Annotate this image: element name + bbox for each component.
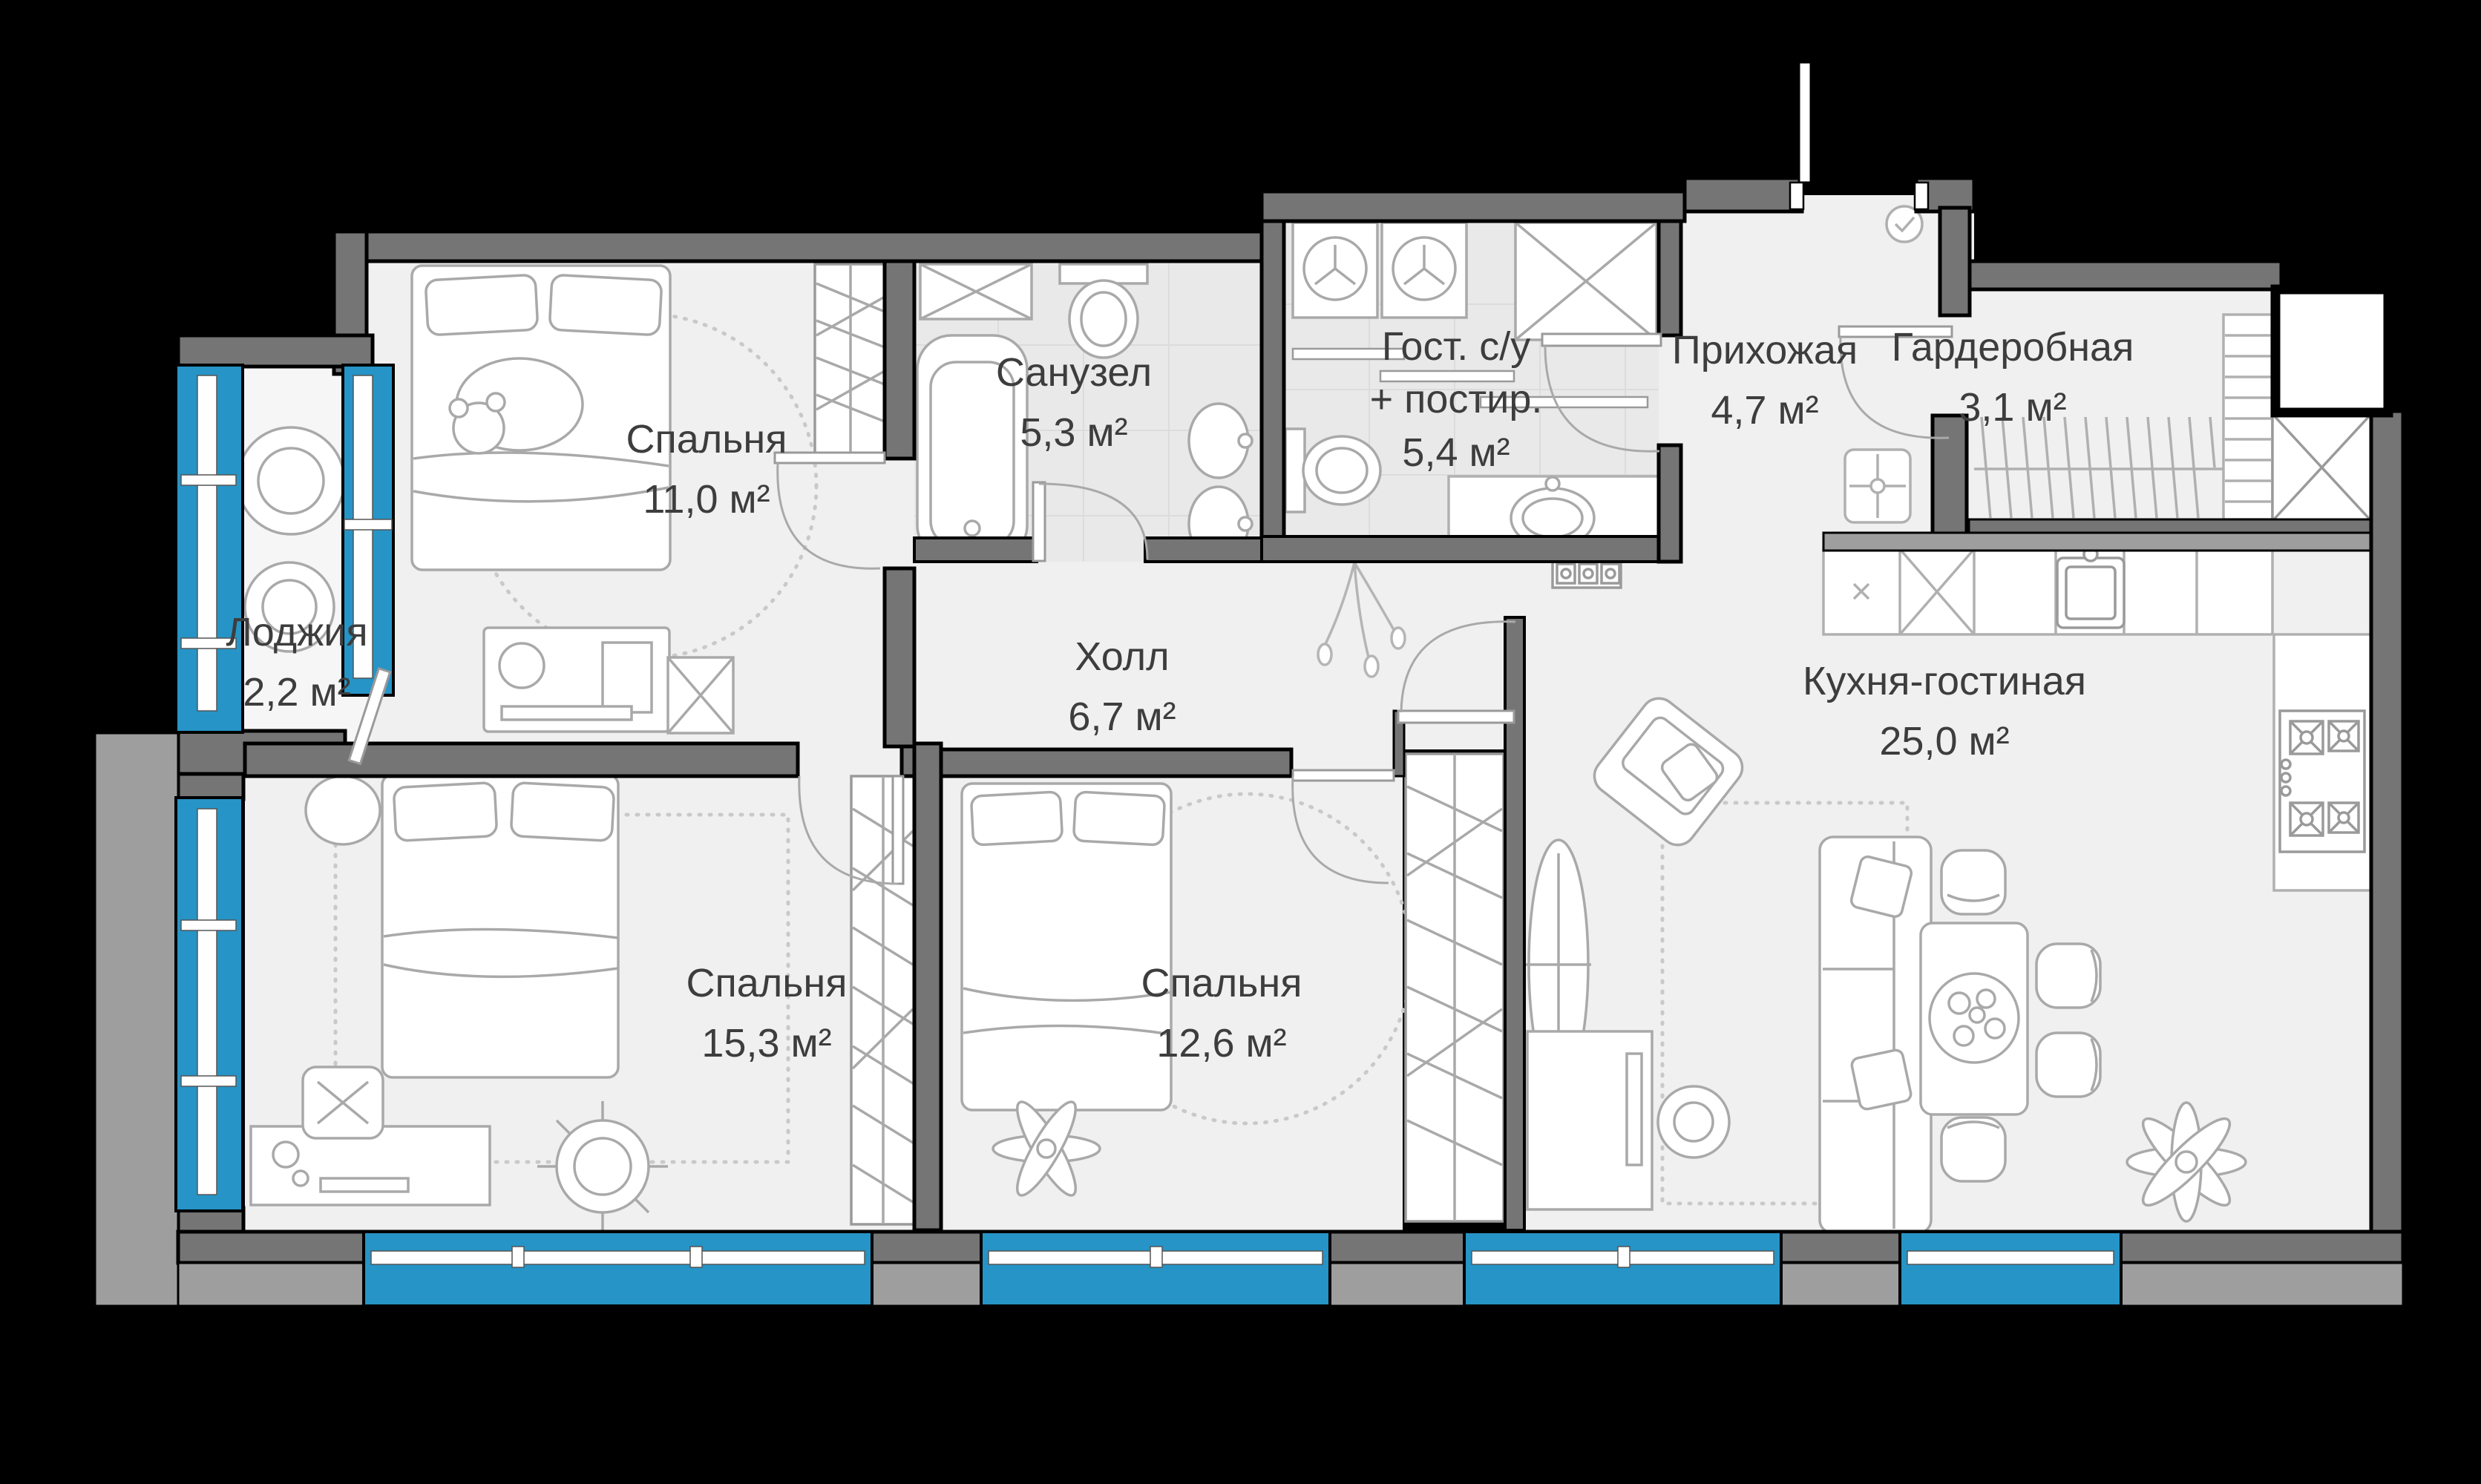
ceiling-light-icon bbox=[1845, 450, 1910, 522]
desk-icon bbox=[1527, 1031, 1652, 1209]
closet-icon bbox=[1406, 754, 1504, 1221]
wall bbox=[1262, 191, 1685, 221]
door-leaf bbox=[1293, 770, 1394, 781]
wall bbox=[941, 749, 1291, 776]
shower-cabinet-icon bbox=[920, 264, 1032, 319]
wall bbox=[885, 568, 914, 746]
stove-icon bbox=[2280, 711, 2364, 852]
wall bbox=[1685, 178, 1802, 211]
window bbox=[364, 1232, 872, 1306]
wall bbox=[245, 743, 798, 776]
wall bbox=[1262, 221, 1284, 560]
floor-plan: Лоджия 2,2 м² Спальня 11,0 м² Санузел 5,… bbox=[0, 0, 2481, 1484]
wall bbox=[1940, 208, 1970, 315]
window bbox=[1464, 1232, 1781, 1306]
window bbox=[981, 1232, 1330, 1306]
loggia-wall bbox=[178, 335, 373, 367]
door-leaf bbox=[1398, 711, 1514, 723]
bed-icon bbox=[382, 775, 618, 1077]
chair-icon bbox=[303, 1067, 383, 1138]
wall bbox=[1659, 221, 1681, 335]
door-leaf bbox=[1542, 334, 1661, 346]
wall bbox=[1659, 445, 1681, 562]
cabinet-icon bbox=[2272, 414, 2371, 521]
stool-icon bbox=[668, 657, 733, 733]
bed-icon bbox=[962, 784, 1171, 1110]
wall bbox=[1505, 617, 1524, 1230]
wall bbox=[1145, 538, 1262, 562]
kitchen-counter bbox=[1823, 549, 2272, 634]
door-jamb bbox=[1790, 183, 1803, 209]
wardrobe-icon bbox=[851, 776, 914, 1224]
wall bbox=[1970, 261, 2281, 289]
office-chair-icon bbox=[1658, 1086, 1729, 1158]
room-label-loggia: Лоджия 2,2 м² bbox=[226, 603, 367, 723]
door-leaf bbox=[893, 776, 903, 884]
wall bbox=[2371, 411, 2403, 1264]
desk-icon bbox=[484, 628, 669, 732]
pouf-icon bbox=[306, 776, 380, 844]
room-label-bedroom-1: Спальня 11,0 м² bbox=[626, 410, 787, 530]
wall bbox=[914, 743, 941, 1230]
dining-table-icon bbox=[1921, 923, 2028, 1114]
entry-door-leaf bbox=[1799, 62, 1811, 183]
room-label-bedroom-2: Спальня 15,3 м² bbox=[686, 953, 848, 1074]
plant-icon bbox=[2127, 1103, 2246, 1221]
wall bbox=[334, 232, 1284, 261]
washing-machine-icon bbox=[1382, 223, 1466, 318]
room-label-bathroom: Санузел 5,3 м² bbox=[996, 343, 1152, 463]
wall bbox=[178, 774, 243, 799]
room-label-entry-hall: Прихожая 4,7 м² bbox=[1672, 321, 1858, 441]
door-leaf bbox=[1033, 482, 1045, 561]
room-label-wardrobe-room: Гардеробная 3,1 м² bbox=[1892, 318, 2134, 438]
room-label-bedroom-3: Спальня 12,6 м² bbox=[1141, 953, 1302, 1074]
door-jamb bbox=[1915, 183, 1928, 209]
floor-plan-drawing bbox=[0, 0, 2481, 1484]
wall bbox=[914, 538, 1037, 562]
door-leaf bbox=[775, 453, 885, 463]
wardrobe-icon bbox=[815, 264, 886, 454]
room-label-hall: Холл 6,7 м² bbox=[1068, 627, 1176, 747]
wall bbox=[885, 261, 914, 459]
shelf-unit-icon bbox=[2223, 315, 2272, 519]
wall bbox=[1262, 536, 1659, 562]
loggia-chair-icon bbox=[237, 427, 344, 534]
room-label-guest-bathroom: Гост. с/у + постир. 5,4 м² bbox=[1370, 321, 1543, 479]
sofa-icon bbox=[1820, 837, 1931, 1233]
half-wall bbox=[1823, 533, 2371, 551]
outer-wall-band bbox=[95, 733, 178, 1306]
window bbox=[1900, 1232, 2121, 1306]
washing-machine-icon bbox=[1293, 223, 1377, 318]
socket-panel-icon bbox=[1553, 559, 1621, 588]
shaft bbox=[2275, 289, 2388, 413]
room-label-kitchen-living: Кухня-гостиная 25,0 м² bbox=[1803, 651, 2086, 772]
